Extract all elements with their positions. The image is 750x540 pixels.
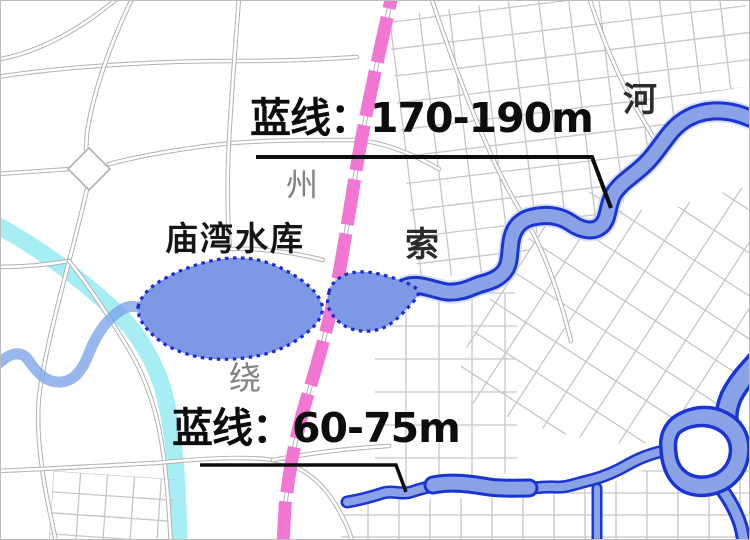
- ring-lake: [661, 361, 750, 540]
- place-char-suo: 索: [405, 228, 439, 262]
- place-char-rao: 绕: [229, 362, 261, 394]
- blue-line-annotation-top: 蓝线：170-190m: [250, 98, 593, 139]
- diamond-interchange: [68, 148, 110, 190]
- major-roads: [1, 1, 659, 540]
- place-char-zhou: 州: [286, 169, 318, 201]
- reservoir-label: 庙湾水库: [165, 222, 305, 255]
- reservoir-polygon: [138, 258, 418, 359]
- map-canvas: 蓝线：170-190m 蓝线：60-75m 庙湾水库 州 索 绕 河: [0, 0, 750, 540]
- street-grid-mid: [373, 293, 521, 501]
- canal-river: [1, 223, 179, 540]
- blue-line-annotation-bottom: 蓝线：60-75m: [172, 408, 460, 449]
- street-grid-southwest: [48, 471, 175, 540]
- transit-line: [283, 1, 392, 540]
- place-char-he: 河: [623, 83, 657, 117]
